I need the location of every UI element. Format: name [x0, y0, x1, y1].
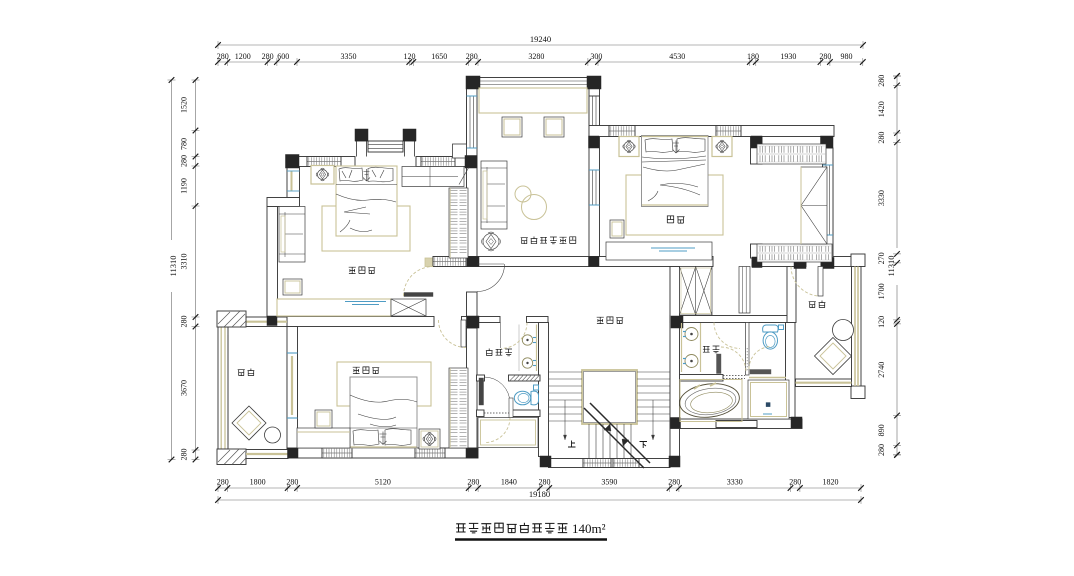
- svg-text:280: 280: [217, 478, 229, 487]
- svg-text:3590: 3590: [601, 478, 617, 487]
- svg-text:280: 280: [466, 52, 478, 61]
- svg-text:2740: 2740: [877, 362, 886, 378]
- svg-text:140m²: 140m²: [572, 521, 606, 536]
- svg-text:280: 280: [180, 155, 189, 167]
- svg-text:1800: 1800: [250, 478, 266, 487]
- svg-text:280: 280: [286, 478, 298, 487]
- svg-text:120: 120: [877, 316, 886, 328]
- svg-text:1520: 1520: [180, 97, 189, 113]
- svg-text:1840: 1840: [501, 478, 517, 487]
- svg-text:1420: 1420: [877, 101, 886, 117]
- svg-text:1190: 1190: [180, 178, 189, 194]
- svg-text:280: 280: [467, 478, 479, 487]
- svg-text:980: 980: [841, 52, 853, 61]
- svg-text:280: 280: [539, 478, 551, 487]
- svg-text:280: 280: [180, 316, 189, 328]
- svg-text:11310: 11310: [168, 256, 178, 277]
- svg-text:120: 120: [404, 52, 416, 61]
- svg-text:1650: 1650: [431, 52, 447, 61]
- svg-text:4530: 4530: [669, 52, 685, 61]
- svg-text:280: 280: [877, 444, 886, 456]
- svg-text:280: 280: [877, 75, 886, 87]
- svg-text:3350: 3350: [341, 52, 357, 61]
- svg-text:5120: 5120: [375, 478, 391, 487]
- svg-text:300: 300: [590, 52, 602, 61]
- svg-text:280: 280: [262, 52, 274, 61]
- svg-text:280: 280: [668, 478, 680, 487]
- svg-text:3670: 3670: [180, 380, 189, 396]
- svg-text:180: 180: [747, 52, 759, 61]
- svg-text:890: 890: [877, 424, 886, 436]
- svg-text:280: 280: [789, 478, 801, 487]
- svg-text:19240: 19240: [530, 34, 551, 44]
- svg-text:1700: 1700: [877, 283, 886, 299]
- svg-text:780: 780: [180, 138, 189, 150]
- svg-text:3280: 3280: [528, 52, 544, 61]
- svg-text:3330: 3330: [877, 190, 886, 206]
- svg-text:280: 280: [180, 449, 189, 461]
- svg-text:1930: 1930: [780, 52, 796, 61]
- svg-text:280: 280: [819, 52, 831, 61]
- svg-text:1200: 1200: [235, 52, 251, 61]
- svg-text:270: 270: [877, 252, 886, 264]
- svg-text:3330: 3330: [727, 478, 743, 487]
- svg-text:280: 280: [217, 52, 229, 61]
- svg-text:19180: 19180: [529, 489, 550, 499]
- svg-text:1820: 1820: [823, 478, 839, 487]
- svg-text:3310: 3310: [180, 254, 189, 270]
- svg-text:600: 600: [277, 52, 289, 61]
- svg-text:280: 280: [877, 132, 886, 144]
